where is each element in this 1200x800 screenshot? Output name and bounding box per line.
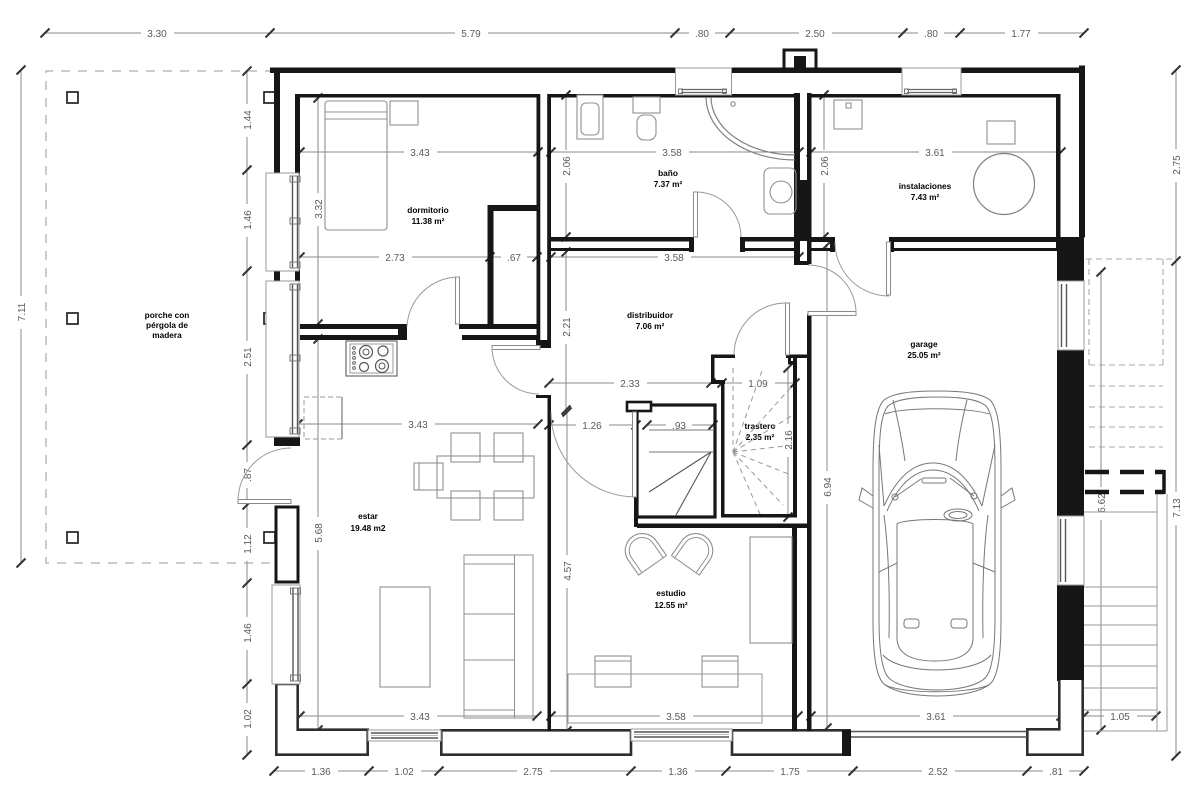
- svg-text:5.79: 5.79: [461, 29, 481, 40]
- svg-text:2.33: 2.33: [620, 379, 640, 390]
- svg-text:7.06 m²: 7.06 m²: [636, 321, 665, 331]
- svg-text:1.12: 1.12: [243, 534, 254, 554]
- svg-text:2.75: 2.75: [1172, 155, 1183, 175]
- svg-text:1.02: 1.02: [243, 709, 254, 729]
- svg-text:3.58: 3.58: [662, 148, 682, 159]
- svg-text:19.48 m2: 19.48 m2: [350, 523, 385, 533]
- svg-text:4.57: 4.57: [563, 561, 574, 581]
- svg-text:2.35 m²: 2.35 m²: [746, 432, 775, 442]
- svg-text:1.05: 1.05: [1110, 712, 1130, 723]
- svg-text:2.50: 2.50: [805, 29, 825, 40]
- svg-text:6.94: 6.94: [823, 477, 834, 497]
- svg-text:.80: .80: [924, 29, 938, 40]
- svg-text:1.02: 1.02: [394, 767, 414, 778]
- svg-text:dormitorio: dormitorio: [407, 205, 448, 215]
- svg-text:2.06: 2.06: [562, 156, 573, 176]
- svg-text:3.58: 3.58: [666, 712, 686, 723]
- svg-text:7.13: 7.13: [1172, 498, 1183, 518]
- svg-text:instalaciones: instalaciones: [899, 181, 952, 191]
- svg-text:7.43 m²: 7.43 m²: [911, 192, 940, 202]
- svg-text:3.58: 3.58: [664, 253, 684, 264]
- svg-text:11.38 m²: 11.38 m²: [412, 216, 445, 226]
- svg-text:madera: madera: [152, 330, 182, 340]
- svg-text:1.77: 1.77: [1011, 29, 1031, 40]
- svg-text:2.75: 2.75: [523, 767, 543, 778]
- svg-text:7.11: 7.11: [17, 302, 28, 321]
- svg-text:3.32: 3.32: [314, 199, 325, 219]
- svg-text:3.30: 3.30: [147, 29, 167, 40]
- svg-text:3.43: 3.43: [408, 420, 428, 431]
- svg-text:2.52: 2.52: [928, 767, 948, 778]
- svg-text:7.37 m²: 7.37 m²: [654, 179, 683, 189]
- svg-text:.81: .81: [1049, 767, 1063, 778]
- svg-text:2.51: 2.51: [243, 347, 254, 367]
- svg-text:5.68: 5.68: [314, 523, 325, 543]
- svg-text:1.26: 1.26: [582, 421, 602, 432]
- svg-text:2.06: 2.06: [820, 156, 831, 176]
- svg-text:garage: garage: [910, 339, 938, 349]
- svg-text:6.62: 6.62: [1097, 493, 1108, 513]
- svg-text:estudio: estudio: [656, 588, 686, 598]
- svg-text:.80: .80: [695, 29, 709, 40]
- svg-text:1.46: 1.46: [243, 623, 254, 643]
- svg-text:2.21: 2.21: [562, 317, 573, 337]
- svg-text:pérgola de: pérgola de: [146, 320, 188, 330]
- svg-text:porche con: porche con: [145, 310, 190, 320]
- svg-text:3.61: 3.61: [925, 148, 945, 159]
- svg-text:estar: estar: [358, 511, 379, 521]
- svg-text:1.46: 1.46: [243, 210, 254, 230]
- svg-text:2.73: 2.73: [385, 253, 405, 264]
- svg-text:3.61: 3.61: [926, 712, 946, 723]
- svg-text:1.36: 1.36: [668, 767, 688, 778]
- svg-text:distribuidor: distribuidor: [627, 310, 674, 320]
- svg-text:25.05 m²: 25.05 m²: [907, 350, 940, 360]
- svg-text:1.36: 1.36: [311, 767, 331, 778]
- svg-text:3.43: 3.43: [410, 148, 430, 159]
- svg-text:1.75: 1.75: [780, 767, 800, 778]
- svg-text:baño: baño: [658, 168, 678, 178]
- svg-text:12.55 m²: 12.55 m²: [654, 600, 687, 610]
- svg-text:3.43: 3.43: [410, 712, 430, 723]
- svg-text:.67: .67: [507, 253, 521, 264]
- svg-text:1.44: 1.44: [243, 110, 254, 130]
